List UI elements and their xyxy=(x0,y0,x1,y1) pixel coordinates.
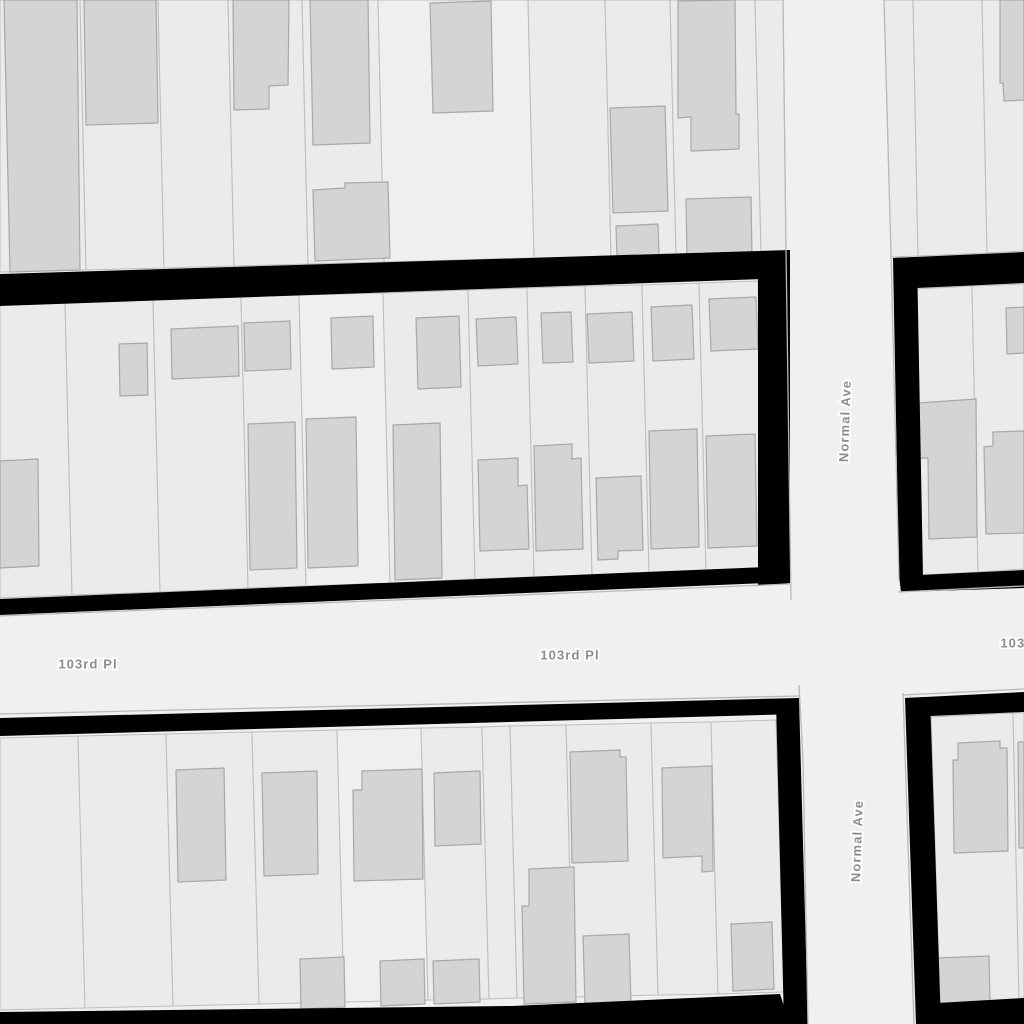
building-footprint xyxy=(433,959,480,1004)
building-footprint xyxy=(476,317,518,366)
building-footprint xyxy=(587,312,634,363)
building-footprint xyxy=(119,343,148,396)
building-footprint xyxy=(430,1,493,113)
building-footprint xyxy=(84,0,158,125)
building-footprint xyxy=(731,922,774,991)
building-footprint xyxy=(1018,742,1024,848)
building-footprint xyxy=(610,106,668,213)
building-footprint xyxy=(706,434,757,548)
street-name-label: 103rd Pl xyxy=(1000,635,1024,650)
street-name-label: Normal Ave xyxy=(836,380,854,463)
building-footprint xyxy=(353,769,423,881)
building-footprint xyxy=(936,956,990,1005)
building-footprint xyxy=(662,766,713,872)
parcel xyxy=(913,0,987,256)
street-name-label: 103rd Pl xyxy=(540,647,599,662)
building-footprint xyxy=(244,321,291,371)
building-footprint xyxy=(300,957,345,1009)
map-canvas[interactable]: 103rd Pl103rd Pl103rd PlNormal AveNormal… xyxy=(0,0,1024,1024)
building-footprint xyxy=(0,459,39,568)
building-footprint xyxy=(306,417,358,568)
building-footprint xyxy=(434,771,481,846)
parcel xyxy=(158,0,234,268)
building-footprint xyxy=(248,422,297,570)
street-name-label: 103rd Pl xyxy=(58,656,117,671)
building-footprint xyxy=(176,768,226,882)
building-footprint xyxy=(541,312,573,363)
building-footprint xyxy=(310,0,370,145)
building-footprint xyxy=(262,771,318,876)
building-footprint xyxy=(651,305,694,361)
street-name-label: Normal Ave xyxy=(848,800,866,883)
building-footprint xyxy=(709,297,758,351)
building-footprint xyxy=(393,423,442,580)
building-footprint xyxy=(984,431,1024,534)
building-footprint xyxy=(686,197,752,259)
building-footprint xyxy=(1000,0,1024,101)
building-footprint xyxy=(331,316,374,369)
building-footprint xyxy=(953,741,1008,853)
building-footprint xyxy=(1006,307,1024,354)
parcel xyxy=(528,0,611,258)
map-viewport[interactable]: 103rd Pl103rd Pl103rd PlNormal AveNormal… xyxy=(0,0,1024,1024)
building-footprint xyxy=(380,959,425,1006)
building-footprint xyxy=(522,867,576,1004)
building-footprint xyxy=(313,182,390,261)
parcel xyxy=(0,736,85,1010)
building-footprint xyxy=(583,934,631,1005)
parcel xyxy=(78,734,173,1008)
building-footprint xyxy=(534,444,583,551)
building-footprint xyxy=(649,429,699,549)
building-footprint xyxy=(416,316,461,389)
block-border-segment xyxy=(758,250,790,586)
building-footprint xyxy=(596,476,643,560)
building-footprint xyxy=(570,750,628,863)
building-footprint xyxy=(616,224,659,258)
building-footprint xyxy=(4,0,80,272)
parcel xyxy=(755,0,786,252)
building-footprint xyxy=(171,326,239,379)
